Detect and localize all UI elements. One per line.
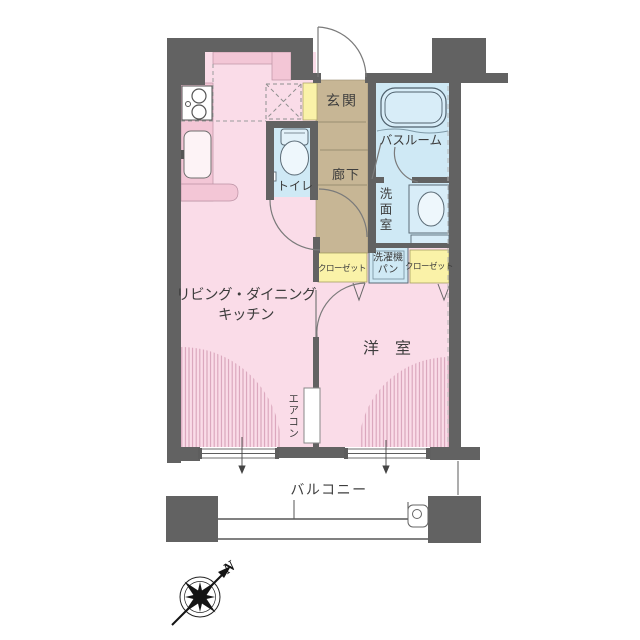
wall-left <box>167 38 181 463</box>
wall-topright-nub <box>486 73 508 83</box>
shoe-cabinet <box>303 83 317 120</box>
wall-washroom-bottom <box>368 243 449 248</box>
kitchen-counter-corner <box>272 52 291 80</box>
aircon-unit <box>304 388 320 443</box>
wall-bath-bottom-l <box>368 177 384 183</box>
wall-entry-left-jamb <box>291 38 313 80</box>
entry-door-arc <box>318 27 366 77</box>
overhead-cabinet <box>266 84 301 119</box>
washroom-label: 洗面室 <box>377 187 392 234</box>
ldk-label: リビング・ダイニング キッチン <box>176 286 316 327</box>
closet-right-label: クローゼット <box>405 261 453 271</box>
window-right <box>344 448 430 459</box>
wall-balcony-right-pier <box>428 496 481 543</box>
wall-topright-block <box>432 38 486 83</box>
window-left <box>198 448 279 459</box>
corridor-label: 廊下 <box>332 167 360 183</box>
balcony-label: バルコニー <box>290 482 367 499</box>
wall-bottom-left <box>167 447 200 461</box>
entrance-label: 玄関 <box>326 93 358 110</box>
closet-left-label: クローゼット <box>318 263 366 273</box>
laundry-pan-label: 洗濯機パン <box>371 253 405 276</box>
aircon-label: エアコン <box>287 393 300 439</box>
floorplan: N 玄関 バスルーム 廊下 トイレ 洗面室 洗濯機パン クローゼット クローゼッ… <box>0 0 640 640</box>
kitchen-sink-icon <box>180 131 211 178</box>
compass-rose-icon: N <box>169 557 240 628</box>
bathroom-label: バスルーム <box>380 134 442 149</box>
toilet-label: トイレ <box>277 179 313 193</box>
stove-burners-icon <box>182 86 212 120</box>
balcony <box>218 461 458 539</box>
wall-corridor-lower <box>313 237 320 253</box>
wall-bottom-mid <box>277 447 345 458</box>
wall-balcony-left-pier <box>166 496 218 542</box>
western-room-label: 洋 室 <box>363 339 411 358</box>
floorplan-drawing: N <box>0 0 640 640</box>
wall-entry-threshold-l <box>313 73 321 83</box>
wall-bottom-right <box>430 447 480 460</box>
balcony-drain-icon <box>408 505 428 527</box>
wall-toilet-left <box>266 121 274 200</box>
wash-basin-icon <box>418 192 444 226</box>
vanity <box>409 185 449 246</box>
kitchen-peninsula <box>181 184 238 201</box>
